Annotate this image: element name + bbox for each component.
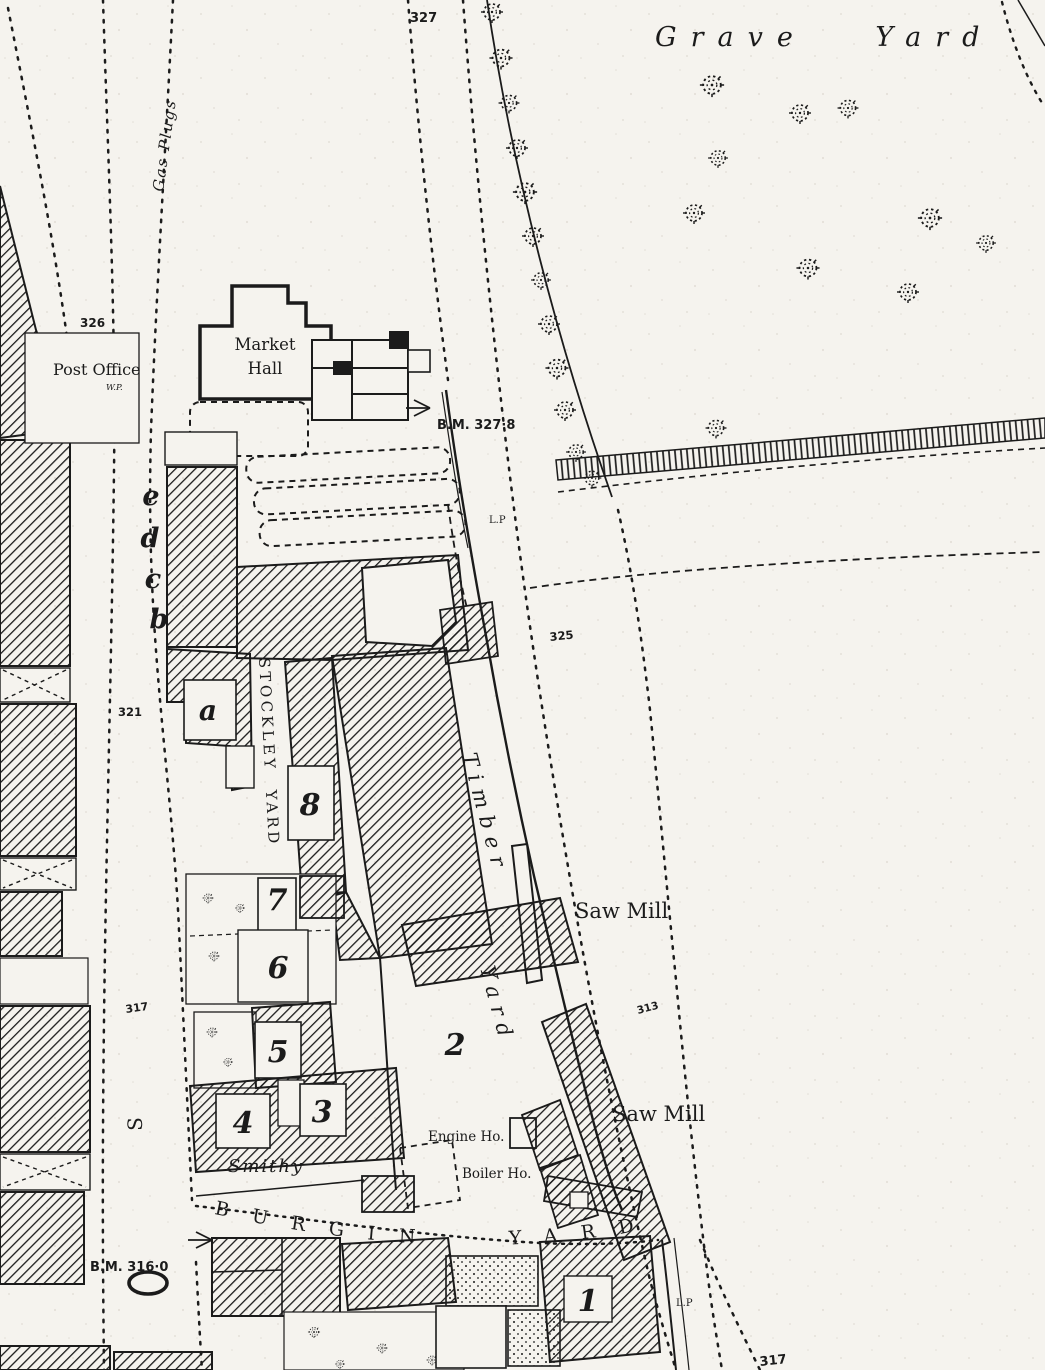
red-annotation-b: b <box>150 604 169 635</box>
spot-height-325: 325 <box>549 628 574 644</box>
market-hall-label-2: Hall <box>248 359 283 378</box>
red-annotation-1: 1 <box>578 1284 599 1319</box>
historic-town-plan-map: Grave Yard Gas Plugs Post Office W.P. Ma… <box>0 0 1045 1370</box>
spot-height-326: 326 <box>80 316 105 330</box>
red-annotation-7: 7 <box>267 883 288 918</box>
red-annotation-c: c <box>145 564 161 595</box>
grave-yard-label: Grave Yard <box>655 22 993 53</box>
lamp-post-upper-label: L.P <box>489 515 506 526</box>
paper-speckle <box>0 0 1045 1370</box>
red-annotation-3: 3 <box>312 1095 333 1130</box>
saw-mill-lower-label: Saw Mill <box>612 1102 705 1126</box>
spot-height-327: 327 <box>410 11 437 26</box>
rear-yard <box>0 958 88 1004</box>
burgin-yard-south-buildings <box>212 1236 689 1370</box>
red-annotation-2: 2 <box>444 1028 466 1063</box>
saw-mill-upper-label: Saw Mill <box>575 899 668 923</box>
red-annotation-d: d <box>141 523 160 554</box>
benchmark-lower-label: B.M. 316·0 <box>90 1260 168 1275</box>
lamp-post-lower-label: L.P <box>676 1298 693 1309</box>
red-annotation-8: 8 <box>299 788 321 823</box>
benchmark-upper-label: B.M. 327·8 <box>437 418 515 433</box>
red-annotation-e: e <box>142 481 159 512</box>
post-office-mark: W.P. <box>106 383 123 393</box>
red-annotation-a: a <box>199 694 217 727</box>
boiler-house-label: Boiler Ho. <box>462 1166 531 1182</box>
market-hall-label-1: Market <box>234 335 295 354</box>
post-office-label: Post Office <box>53 360 141 379</box>
red-annotation-6: 6 <box>268 951 289 986</box>
spot-height-321: 321 <box>118 705 142 719</box>
map-canvas: Grave Yard Gas Plugs Post Office W.P. Ma… <box>0 0 1045 1370</box>
engine-house-label: Engine Ho. <box>428 1129 504 1145</box>
red-annotation-5: 5 <box>268 1035 289 1070</box>
street-name-letter: S <box>123 1117 147 1131</box>
red-annotation-4: 4 <box>233 1106 254 1141</box>
street-front-range <box>165 432 237 465</box>
smithy-label: Smithy <box>228 1156 304 1177</box>
spot-height-317-south: 317 <box>759 1352 788 1370</box>
